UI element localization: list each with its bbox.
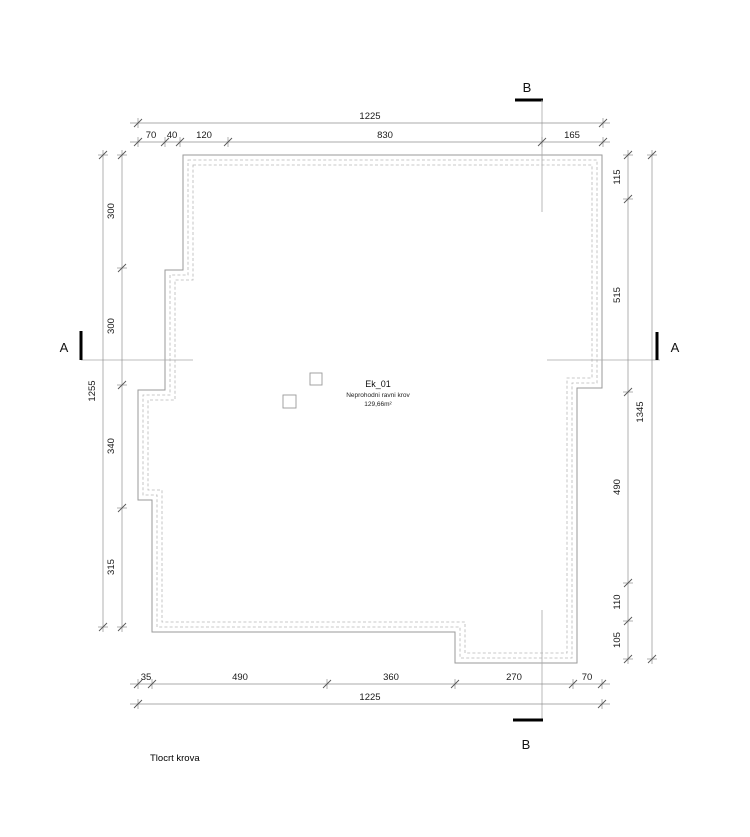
dim-right-seg-4: 110 — [612, 594, 623, 609]
section-b-bar-bottom — [513, 719, 543, 722]
section-a-label-right: A — [671, 340, 680, 355]
dim-bottom-seg-4: 270 — [506, 672, 522, 683]
section-line-b: B B — [513, 80, 543, 752]
section-a-bar-left — [80, 331, 83, 360]
dim-top: 1225 70 40 120 830 165 — [130, 111, 610, 147]
section-b-label-bottom: B — [522, 737, 531, 752]
roof-label: Ek_01 Neprohodni ravni krov 129,66m² — [346, 379, 410, 408]
dim-bottom-seg-1: 35 — [141, 672, 152, 683]
dim-bottom-seg-3: 360 — [383, 672, 399, 683]
roof-edge-inset1 — [143, 160, 597, 658]
dim-top-overall: 1225 — [359, 111, 380, 122]
dim-bottom: 35 490 360 270 70 1225 — [130, 672, 610, 709]
section-a-bar-right — [656, 332, 659, 360]
dim-left-overall: 1255 — [87, 380, 98, 401]
dim-right-seg-1: 115 — [612, 169, 623, 184]
roof-plan-page: { "title": "Tlocrt krova", "roof_label":… — [0, 0, 750, 837]
dim-top-seg-2: 40 — [167, 130, 178, 141]
dim-left-seg-1: 300 — [106, 203, 117, 219]
section-b-bar-top — [515, 99, 543, 102]
roof-code: Ek_01 — [365, 379, 391, 389]
dim-top-seg-1: 70 — [146, 130, 157, 141]
roof-edge-outer — [138, 155, 602, 663]
roof-description: Neprohodni ravni krov — [346, 392, 410, 399]
dim-right-seg-3: 490 — [612, 479, 623, 495]
dim-right: 115 515 490 110 105 1345 — [612, 150, 657, 664]
dim-bottom-seg-5: 70 — [582, 672, 593, 683]
dim-top-seg-3: 120 — [196, 130, 212, 141]
roof-square-2 — [283, 395, 296, 408]
drawing-title: Tlocrt krova — [150, 753, 200, 764]
dim-right-seg-2: 515 — [612, 287, 623, 303]
dim-bottom-seg-2: 490 — [232, 672, 248, 683]
dim-right-seg-5: 105 — [612, 632, 623, 648]
dim-bottom-overall: 1225 — [359, 692, 380, 703]
roof-plan-drawing: A A B B 1225 70 40 120 830 165 35 490 36… — [0, 0, 750, 837]
roof-edge-inset2 — [148, 165, 592, 653]
dim-top-seg-5: 165 — [564, 130, 580, 141]
dim-left-seg-3: 340 — [106, 438, 117, 454]
section-line-a: A A — [60, 331, 680, 360]
dim-left-seg-4: 315 — [106, 559, 117, 575]
section-b-label-top: B — [523, 80, 532, 95]
dim-top-seg-4: 830 — [377, 130, 393, 141]
roof-area: 129,66m² — [364, 401, 392, 408]
dim-left-seg-2: 300 — [106, 318, 117, 334]
roof-squares — [283, 373, 322, 408]
dim-left: 1255 300 300 340 315 — [87, 150, 127, 632]
dim-right-overall: 1345 — [635, 401, 646, 422]
roof-square-1 — [310, 373, 322, 385]
section-a-label-left: A — [60, 340, 69, 355]
roof-outline — [138, 155, 602, 663]
